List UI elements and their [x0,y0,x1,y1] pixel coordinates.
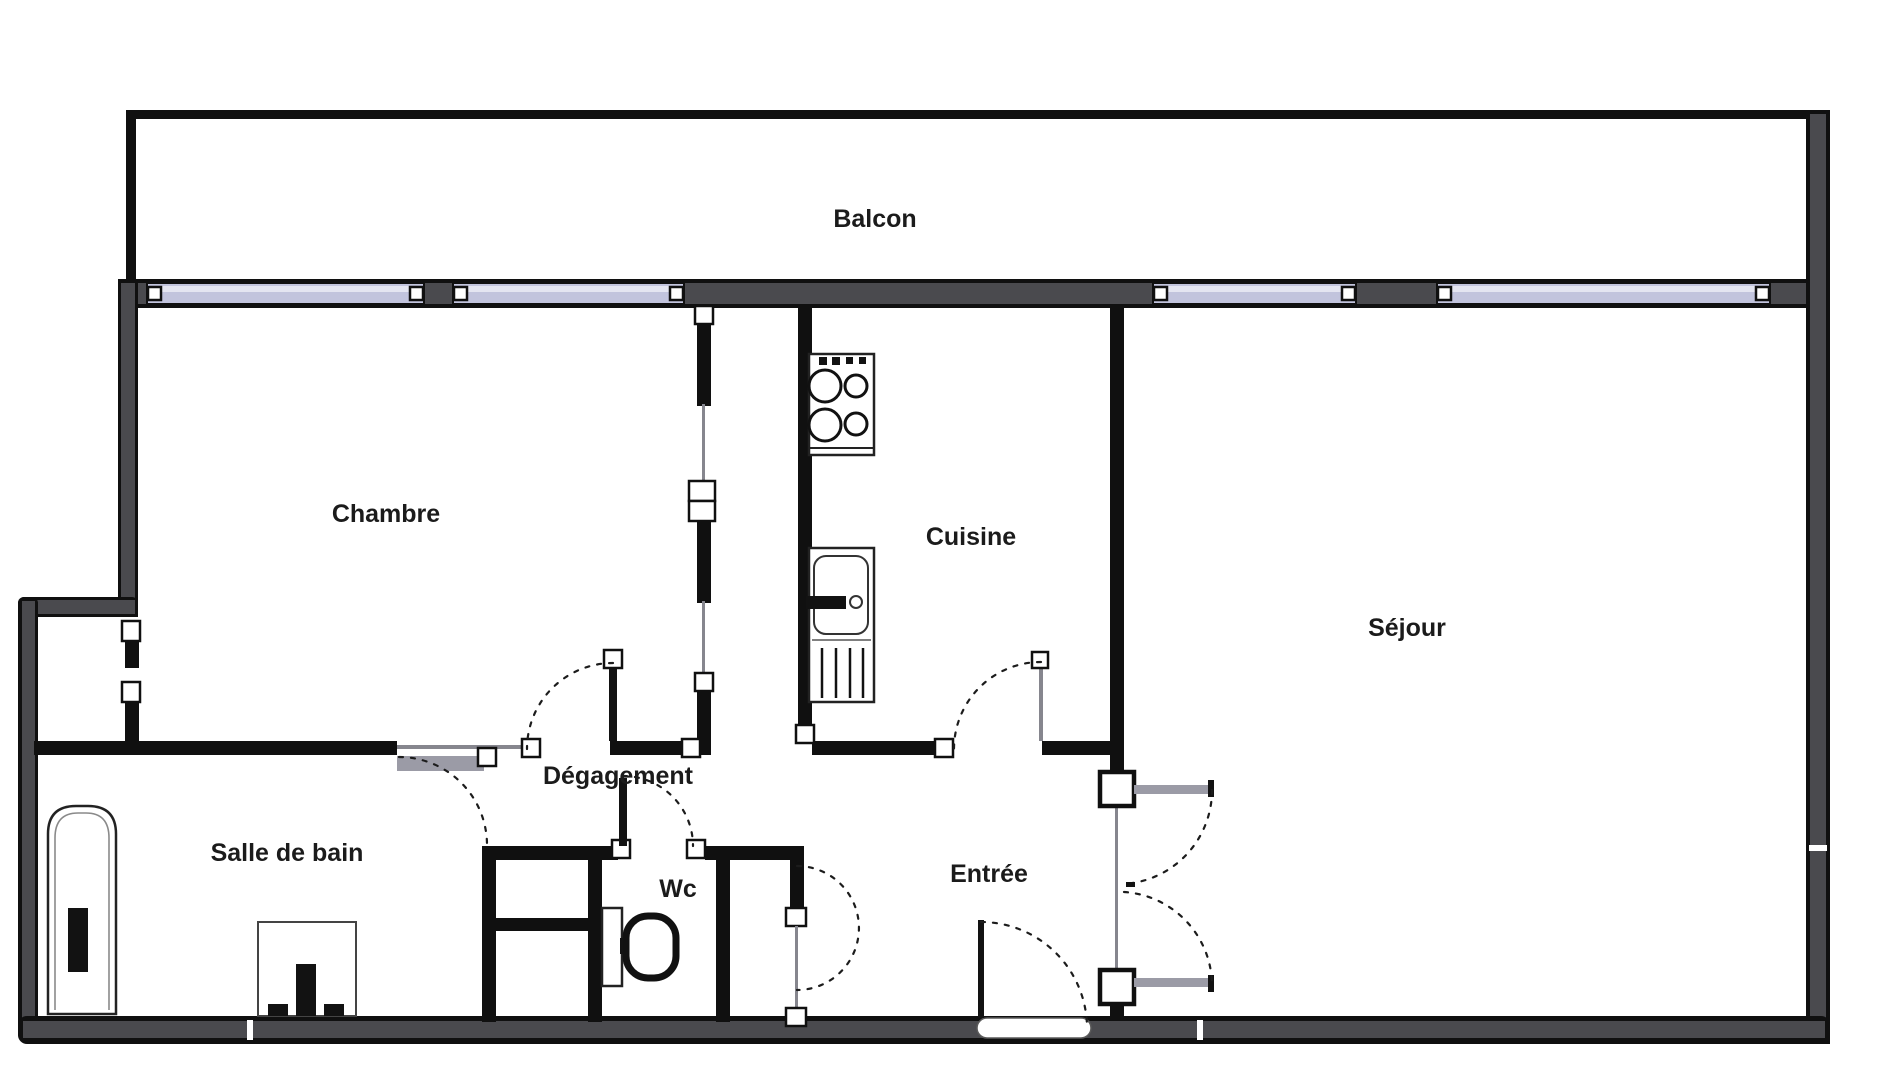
wall-marker [796,725,814,743]
window-end-cap [1756,287,1769,300]
left-wall-lower-fill [22,601,35,1037]
door-threshold [977,1018,1091,1038]
door-leaf [1039,662,1043,741]
wc-east-wall [716,846,730,1022]
floor-plan-drawing: Balcon Chambre Cuisine Séjour Salle de b… [0,0,1894,1080]
window-end-cap [454,287,467,300]
balcony-top-wall [126,110,1824,119]
chambre-east-wall [697,322,711,406]
door-jamb [786,1008,806,1026]
label-chambre: Chambre [332,500,440,528]
door-leaf [1134,978,1212,987]
window-band [118,279,1830,308]
bottom-wall-joint [247,1020,253,1040]
label-wc: Wc [659,875,697,903]
wall-marker [689,481,715,501]
bathroom-east-wall [482,846,496,1022]
wall-marker [695,306,713,324]
washbasin-pedestal [296,964,316,1016]
door-meeting-mark [1126,882,1135,887]
entree-closet-wall [790,846,804,914]
window-sejour-1 [1153,283,1356,304]
door-post [1100,970,1134,1004]
bottom-wall-fill [23,1021,1825,1038]
toilet-bowl [626,916,676,978]
door-jamb [522,739,540,757]
closet-front-line [702,601,705,673]
room-regions [38,119,1806,1016]
window-chambre-2 [453,283,684,304]
toilet-tank [602,908,622,986]
toilet-symbol [602,908,676,986]
right-wall-fill [1810,114,1826,1040]
stove-knob [832,357,840,365]
stove-knob [846,357,853,364]
kitchen-sink-symbol [806,548,874,702]
right-wall-joint [1809,845,1827,851]
chambre-east-wall [697,519,711,603]
closet-east-wall [588,846,602,1022]
window-end-cap [1154,287,1167,300]
window-sejour-2 [1437,283,1770,304]
gaine-box [122,682,140,702]
salle-de-bain-north-wall [34,741,397,755]
window-chambre-1 [147,283,424,304]
double-door-closed-line [1115,806,1118,970]
closet-divider-wall [482,918,602,931]
label-balcon: Balcon [833,205,916,233]
wall-thin-line [397,745,540,749]
stove-burner [845,375,867,397]
door-leaf-closed [795,926,798,1008]
door-leaf [978,920,984,1018]
stove-knob [859,357,866,364]
left-wall-upper-fill [121,283,135,614]
door-post [1100,772,1134,806]
wall-marker [689,501,715,521]
window-end-cap [670,287,683,300]
closet-front-line [702,404,705,481]
door-hinge [478,748,496,766]
gaine-stub [125,641,139,668]
label-cuisine: Cuisine [926,523,1016,551]
room-degagement-strip [711,308,798,741]
bathtub-symbol [48,806,116,1014]
floor-plan-page: Balcon Chambre Cuisine Séjour Salle de b… [0,0,1894,1080]
stove-knob [819,357,827,365]
door-leaf [1134,785,1212,794]
sink-tap [806,596,846,609]
window-end-cap [148,287,161,300]
gaine-box [122,621,140,641]
washbasin-symbol [258,922,356,1016]
bathtub-tap [68,908,88,972]
door-leaf-cap [604,650,622,668]
degagement-north-wall [812,741,939,755]
door-hinge [786,908,806,926]
balcony-left-wall [126,110,136,284]
stove-burner [809,409,841,441]
wall-marker [682,739,700,757]
door-jamb [935,739,953,757]
washbasin-foot [324,1004,344,1016]
cuisine-sejour-wall [1110,304,1124,776]
wc-north-wall [482,846,618,860]
stove-symbol [809,354,874,455]
room-balcon [136,119,1806,279]
label-degagement: Dégagement [543,762,694,790]
washbasin-foot [268,1004,288,1016]
door-leaf-cap [1032,652,1048,668]
label-entree: Entrée [950,860,1028,888]
door-jamb [687,840,705,858]
window-end-cap [1438,287,1451,300]
room-sejour [1124,308,1806,1016]
window-end-cap [1342,287,1355,300]
bottom-wall-joint [1197,1020,1203,1040]
gaine-stub [125,702,139,741]
left-jog-wall-fill [22,600,135,614]
label-sejour: Séjour [1368,614,1446,642]
window-end-cap [410,287,423,300]
stove-burner [845,413,867,435]
wall-marker [695,673,713,691]
degagement-north-wall [1042,741,1110,755]
label-salle-de-bain: Salle de bain [211,839,364,867]
stove-burner [809,370,841,402]
door-leaf [609,668,617,741]
